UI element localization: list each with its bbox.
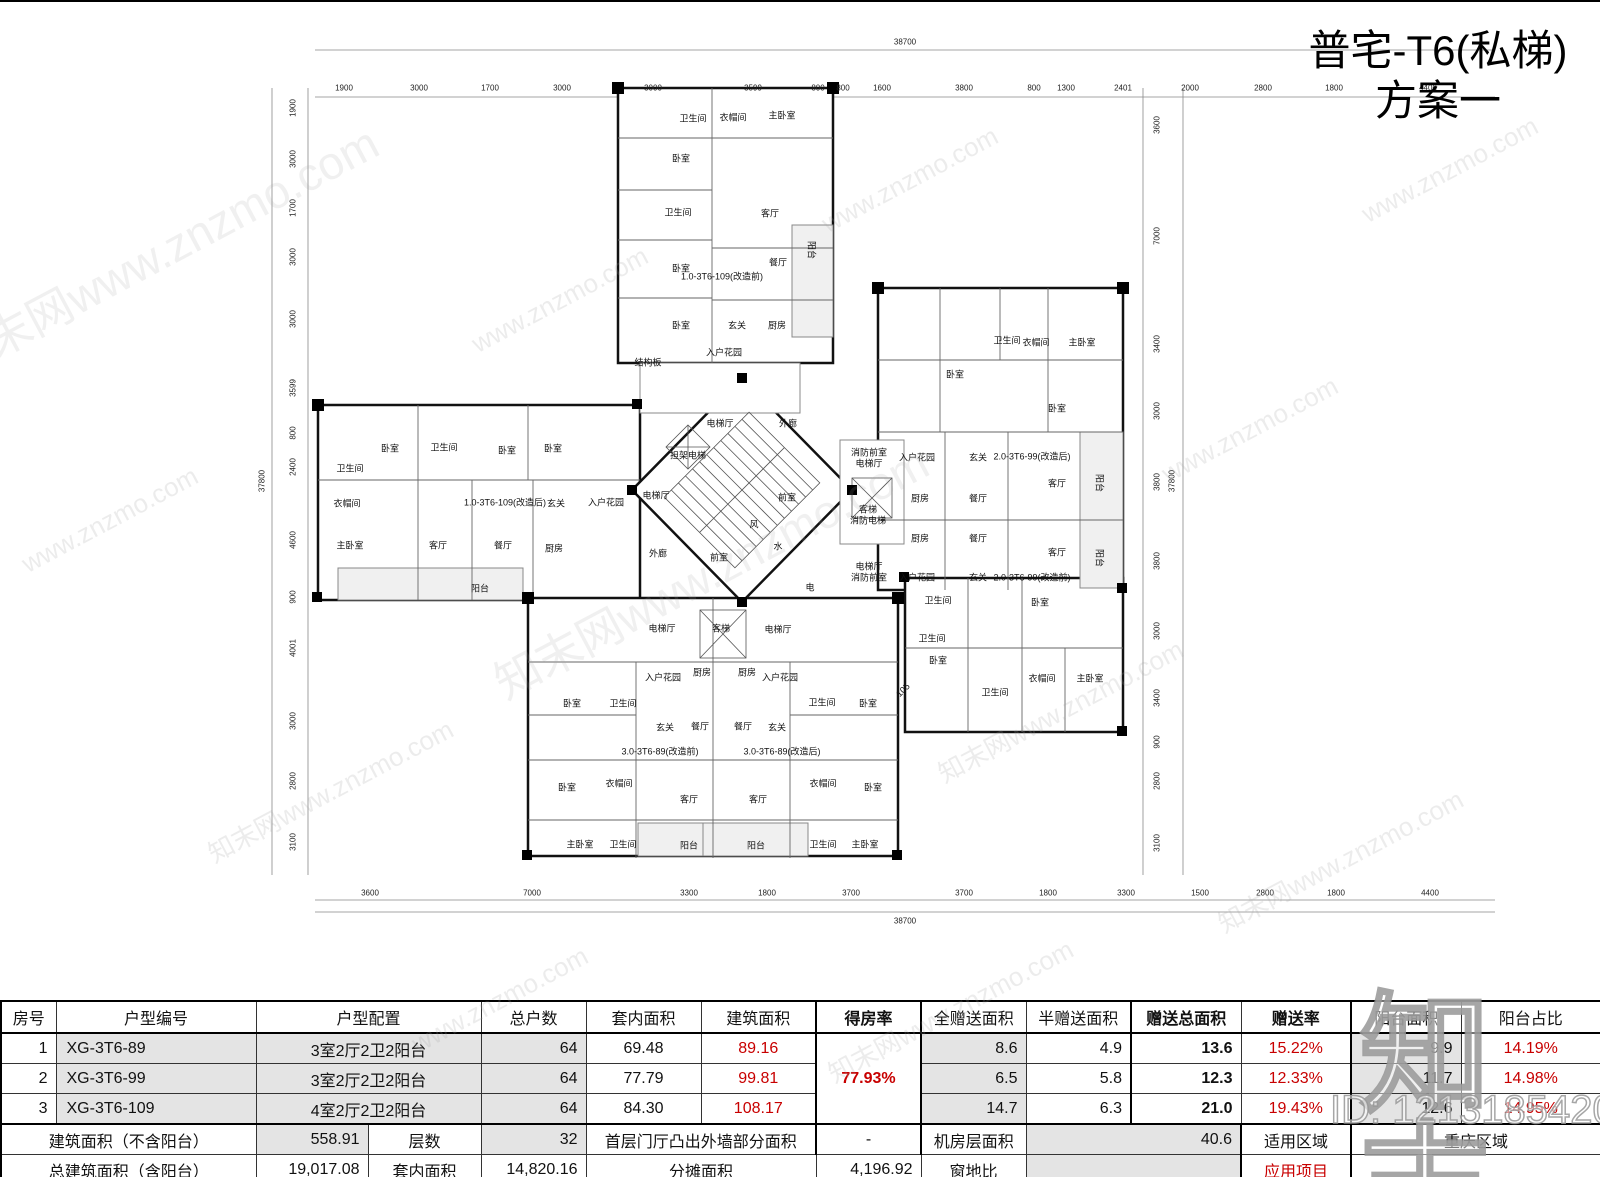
room-label: 卧室 xyxy=(946,368,964,381)
room-label: 衣帽间 xyxy=(1022,336,1049,349)
room-label: 厨房 xyxy=(738,666,756,679)
room-label: 阳台 xyxy=(1094,549,1107,567)
table-header-cell: 得房率 xyxy=(816,1001,921,1033)
room-label: 前室 xyxy=(778,491,796,504)
dimension-label: 3800 xyxy=(1153,552,1162,570)
dimension-label: 2000 xyxy=(1181,84,1199,93)
room-label: 厨房 xyxy=(545,542,563,555)
stats-table: 房号户型编号户型配置总户数套内面积建筑面积得房率全赠送面积半赠送面积赠送总面积赠… xyxy=(0,1000,1600,1177)
table-cell: 77.79 xyxy=(586,1064,701,1094)
overall-dim-bottom: 38700 xyxy=(894,917,916,926)
room-label: 1.0-3T6-109(改造后) xyxy=(464,496,546,509)
room-label: 结构板 xyxy=(634,356,661,369)
table-header-cell: 户型编号 xyxy=(56,1001,256,1033)
table-row: 总建筑面积（含阳台）19,017.08套内面积14,820.16分摊面积4,19… xyxy=(1,1155,1600,1177)
dimension-label: 2401 xyxy=(1114,84,1132,93)
dimension-label: 3400 xyxy=(1153,689,1162,707)
table-row: 3XG-3T6-1094室2厅2卫2阳台6484.30108.1714.76.3… xyxy=(1,1094,1600,1125)
room-label: 阳台 xyxy=(680,839,698,852)
dimension-label: 2400 xyxy=(289,458,298,476)
overall-dim-top: 38700 xyxy=(894,38,916,47)
room-label: 电梯厅 xyxy=(706,417,733,430)
dimension-label: 2800 xyxy=(1254,84,1272,93)
table-cell xyxy=(1026,1155,1241,1177)
table-header-cell: 阳台占比 xyxy=(1461,1001,1600,1033)
room-label: 餐厅 xyxy=(969,532,987,545)
room-label: 水 xyxy=(773,540,782,553)
room-label: 玄关 xyxy=(969,451,987,464)
room-label: 阳台 xyxy=(1094,474,1107,492)
room-label: 卧室 xyxy=(1048,402,1066,415)
dimension-label: 3000 xyxy=(1153,402,1162,420)
dimension-label: 3000 xyxy=(410,84,428,93)
room-label: 电梯厅 xyxy=(764,623,791,636)
table-cell: 机房层面积 xyxy=(921,1124,1026,1155)
room-label: 卫生间 xyxy=(609,838,636,851)
table-cell: 21.0 xyxy=(1131,1094,1241,1125)
room-label: 厨房 xyxy=(768,319,786,332)
room-label: 2.0-3T6-99(改造后) xyxy=(993,450,1070,463)
room-label: 主卧室 xyxy=(1068,336,1095,349)
dimension-label: 1900 xyxy=(335,84,353,93)
table-header-row: 房号户型编号户型配置总户数套内面积建筑面积得房率全赠送面积半赠送面积赠送总面积赠… xyxy=(1,1001,1600,1033)
room-label: 厨房 xyxy=(693,666,711,679)
table-cell: 适用区域 xyxy=(1241,1124,1351,1155)
room-label: 2.0-3T6-99(改造前) xyxy=(993,571,1070,584)
table-cell: 应用项目 xyxy=(1241,1155,1351,1177)
room-label: 阳台 xyxy=(806,241,819,259)
table-cell: 4,196.92 xyxy=(816,1155,921,1177)
table-header-cell: 建筑面积 xyxy=(701,1001,816,1033)
table-cell: 14.98% xyxy=(1461,1064,1600,1094)
table-cell: 11.7 xyxy=(1351,1064,1461,1094)
dimension-label: 800 xyxy=(289,426,298,439)
table-cell xyxy=(1351,1155,1600,1177)
dimension-label: 1500 xyxy=(1191,889,1209,898)
dimension-label: 2800 xyxy=(289,772,298,790)
table-cell: 64 xyxy=(481,1033,586,1064)
dimension-label: 3100 xyxy=(289,833,298,851)
dimension-label: 3700 xyxy=(842,889,860,898)
room-label: 卫生间 xyxy=(924,594,951,607)
room-label: 卧室 xyxy=(672,319,690,332)
table-cell: 3室2厅2卫2阳台 xyxy=(256,1064,481,1094)
dimension-label: 4400 xyxy=(1421,889,1439,898)
table-cell: 14,820.16 xyxy=(481,1155,586,1177)
room-label: 外廊 xyxy=(779,417,797,430)
table-cell: 558.91 xyxy=(256,1124,368,1155)
drawing-title-line1: 普宅-T6(私梯) xyxy=(1280,26,1596,76)
dimension-label: 3300 xyxy=(1117,889,1135,898)
table-cell: 40.6 xyxy=(1026,1124,1241,1155)
dimension-label: 3800 xyxy=(1153,473,1162,491)
table-cell: 8.6 xyxy=(921,1033,1026,1064)
dimension-label: 800 xyxy=(1027,84,1040,93)
dimension-label: 3700 xyxy=(955,889,973,898)
dimension-label: 3800 xyxy=(955,84,973,93)
room-label: 玄关 xyxy=(547,497,565,510)
room-label: 3.0-3T6-89(改造前) xyxy=(621,745,698,758)
table-cell: 窗地比 xyxy=(921,1155,1026,1177)
table-header-cell: 赠送总面积 xyxy=(1131,1001,1241,1033)
table-header-cell: 阳台面积 xyxy=(1351,1001,1461,1033)
table-cell: 3室2厅2卫2阳台 xyxy=(256,1033,481,1064)
room-label: 衣帽间 xyxy=(809,777,836,790)
room-label: 餐厅 xyxy=(734,720,752,733)
room-label: 主卧室 xyxy=(336,539,363,552)
overall-dim-right: 37800 xyxy=(1168,470,1177,492)
room-label: 卧室 xyxy=(929,654,947,667)
dimension-label: 3000 xyxy=(289,248,298,266)
dimension-label: 4600 xyxy=(289,531,298,549)
room-label: 卫生间 xyxy=(808,696,835,709)
table-cell: 1 xyxy=(1,1033,56,1064)
room-label: 入户花园 xyxy=(762,671,798,684)
room-label: 1.0-3T6-109(改造前) xyxy=(681,270,763,283)
room-label: 餐厅 xyxy=(691,720,709,733)
table-cell: 64 xyxy=(481,1094,586,1125)
room-label: 外廊 xyxy=(649,547,667,560)
dimension-label: 1300 xyxy=(1057,84,1075,93)
room-label: 餐厅 xyxy=(494,539,512,552)
room-label: 玄关 xyxy=(728,319,746,332)
table-cell: 6.3 xyxy=(1026,1094,1131,1125)
room-label: 主卧室 xyxy=(566,838,593,851)
table-cell: 84.30 xyxy=(586,1094,701,1125)
table-cell: 3 xyxy=(1,1094,56,1125)
dimension-label: 900 xyxy=(289,590,298,603)
room-label: 卧室 xyxy=(498,444,516,457)
room-label: 客厅 xyxy=(429,539,447,552)
room-label: 卧室 xyxy=(381,442,399,455)
dimension-label: 3600 xyxy=(1153,116,1162,134)
table-header-cell: 半赠送面积 xyxy=(1026,1001,1131,1033)
room-label: 风 xyxy=(749,518,758,531)
room-label: 卫生间 xyxy=(679,112,706,125)
room-label: 消防电梯 xyxy=(850,514,886,527)
overall-dim-left: 37800 xyxy=(258,470,267,492)
table-cell: 建筑面积（不含阳台） xyxy=(1,1124,256,1155)
room-label: 担架电梯 xyxy=(670,449,706,462)
dimension-label: 900 xyxy=(1153,735,1162,748)
room-label: 厨房 xyxy=(911,532,929,545)
dimension-label: 3000 xyxy=(289,310,298,328)
table-cell: 69.48 xyxy=(586,1033,701,1064)
room-label: 卫生间 xyxy=(430,441,457,454)
room-label: 卫生间 xyxy=(809,838,836,851)
table-cell: 12.6 xyxy=(1351,1094,1461,1125)
table-row: 2XG-3T6-993室2厅2卫2阳台6477.7999.816.55.812.… xyxy=(1,1064,1600,1094)
room-label: 卧室 xyxy=(1031,596,1049,609)
table-cell: XG-3T6-109 xyxy=(56,1094,256,1125)
room-label: 餐厅 xyxy=(769,256,787,269)
room-label: 玄关 xyxy=(656,721,674,734)
dimension-label: 3600 xyxy=(361,889,379,898)
stats-table-body: 1XG-3T6-893室2厅2卫2阳台6469.4889.1677.93%8.6… xyxy=(1,1033,1600,1177)
room-label: 卫生间 xyxy=(609,697,636,710)
table-cell: 19,017.08 xyxy=(256,1155,368,1177)
table-header-cell: 赠送率 xyxy=(1241,1001,1351,1033)
room-label: 电梯厅 xyxy=(855,457,882,470)
table-header-cell: 户型配置 xyxy=(256,1001,481,1033)
dimension-label: 1800 xyxy=(1327,889,1345,898)
room-label: 卧室 xyxy=(544,442,562,455)
room-label: 客厅 xyxy=(1048,546,1066,559)
table-header-cell: 房号 xyxy=(1,1001,56,1033)
dimension-label: 1800 xyxy=(758,889,776,898)
room-label: 卫生间 xyxy=(918,632,945,645)
room-label: 衣帽间 xyxy=(719,111,746,124)
dimension-label: 3000 xyxy=(289,150,298,168)
room-label: 卫生间 xyxy=(981,686,1008,699)
table-cell: 9.9 xyxy=(1351,1033,1461,1064)
dimension-label: 3599 xyxy=(744,84,762,93)
room-label: 客厅 xyxy=(1048,477,1066,490)
dimension-label: 3599 xyxy=(289,379,298,397)
table-cell: 64 xyxy=(481,1064,586,1094)
table-cell: 5.8 xyxy=(1026,1064,1131,1094)
dimension-label: 3000 xyxy=(1153,622,1162,640)
room-label: 客厅 xyxy=(749,793,767,806)
room-label: 主卧室 xyxy=(768,109,795,122)
dimension-label: 3000 xyxy=(289,712,298,730)
room-label: 卫生间 xyxy=(664,206,691,219)
table-cell: 6.5 xyxy=(921,1064,1026,1094)
table-cell: 分摊面积 xyxy=(586,1155,816,1177)
room-label: 客厅 xyxy=(680,793,698,806)
room-label: 阳台 xyxy=(471,582,489,595)
room-label: 客梯 xyxy=(712,622,730,635)
dimension-label: 7000 xyxy=(1153,227,1162,245)
plan-walls xyxy=(318,88,1123,856)
room-label: 入户花园 xyxy=(706,346,742,359)
table-header-cell: 总户数 xyxy=(481,1001,586,1033)
table-cell: 套内面积 xyxy=(368,1155,481,1177)
table-cell: 19.43% xyxy=(1241,1094,1351,1125)
dimension-label: 2800 xyxy=(1256,889,1274,898)
table-cell: 2 xyxy=(1,1064,56,1094)
room-label: 客厅 xyxy=(761,207,779,220)
room-label: 电 xyxy=(805,581,814,594)
room-label: 入户花园 xyxy=(588,496,624,509)
room-label: 卧室 xyxy=(672,152,690,165)
dimension-label: 1900 xyxy=(289,99,298,117)
room-label: 主卧室 xyxy=(851,838,878,851)
room-label: 入户花园 xyxy=(645,671,681,684)
table-cell: 首层门厅凸出外墙部分面积 xyxy=(586,1124,816,1155)
room-label: 玄关 xyxy=(969,571,987,584)
room-label: 电梯厅 xyxy=(642,489,669,502)
table-row: 1XG-3T6-893室2厅2卫2阳台6469.4889.1677.93%8.6… xyxy=(1,1033,1600,1064)
room-label: 电梯厅 xyxy=(648,622,675,635)
table-header-cell: 套内面积 xyxy=(586,1001,701,1033)
table-cell: 14.7 xyxy=(921,1094,1026,1125)
table-cell: 89.16 xyxy=(701,1033,816,1064)
table-row: 建筑面积（不含阳台）558.91层数32首层门厅凸出外墙部分面积-机房层面积40… xyxy=(1,1124,1600,1155)
dimension-label: 1700 xyxy=(289,199,298,217)
table-cell: XG-3T6-89 xyxy=(56,1033,256,1064)
dimension-label: 3400 xyxy=(1153,335,1162,353)
room-label: 餐厅 xyxy=(969,492,987,505)
table-cell: XG-3T6-99 xyxy=(56,1064,256,1094)
dimension-label: 1800 xyxy=(1039,889,1057,898)
table-cell: 77.93% xyxy=(816,1033,921,1124)
table-cell: 14.95% xyxy=(1461,1094,1600,1125)
room-label: 玄关 xyxy=(768,721,786,734)
dimension-label: 4001 xyxy=(289,639,298,657)
table-cell: - xyxy=(816,1124,921,1155)
room-label: 消防前室 xyxy=(851,571,887,584)
page: 卫生间衣帽间主卧室卧室卫生间客厅阳台卧室餐厅1.0-3T6-109(改造前)卧室… xyxy=(0,0,1600,1177)
dimension-label: 7000 xyxy=(523,889,541,898)
table-cell: 99.81 xyxy=(701,1064,816,1094)
room-label: 卫生间 xyxy=(993,334,1020,347)
dimension-label: 2800 xyxy=(1153,772,1162,790)
room-label: 衣帽间 xyxy=(333,497,360,510)
table-cell: 32 xyxy=(481,1124,586,1155)
table-cell: 4室2厅2卫2阳台 xyxy=(256,1094,481,1125)
table-cell: 12.33% xyxy=(1241,1064,1351,1094)
dimension-label: 1700 xyxy=(481,84,499,93)
table-cell: 108.17 xyxy=(701,1094,816,1125)
table-cell: 12.3 xyxy=(1131,1064,1241,1094)
room-label: 卧室 xyxy=(563,697,581,710)
room-label: 卧室 xyxy=(859,697,877,710)
room-label: 主卧室 xyxy=(1076,672,1103,685)
table-header-cell: 全赠送面积 xyxy=(921,1001,1026,1033)
room-label: 衣帽间 xyxy=(1028,672,1055,685)
table-cell: 重庆区域 xyxy=(1351,1124,1600,1155)
room-label: 入户花园 xyxy=(899,571,935,584)
table-cell: 13.6 xyxy=(1131,1033,1241,1064)
table-cell: 总建筑面积（含阳台） xyxy=(1,1155,256,1177)
dimension-label: 3000 xyxy=(553,84,571,93)
room-label: 入户花园 xyxy=(899,451,935,464)
drawing-title-line2: 方案一 xyxy=(1280,76,1596,126)
table-cell: 15.22% xyxy=(1241,1033,1351,1064)
room-label: 厨房 xyxy=(911,492,929,505)
room-label: 卫生间 xyxy=(336,462,363,475)
stats-table-head: 房号户型编号户型配置总户数套内面积建筑面积得房率全赠送面积半赠送面积赠送总面积赠… xyxy=(1,1001,1600,1033)
room-label: 卧室 xyxy=(558,781,576,794)
table-cell: 4.9 xyxy=(1026,1033,1131,1064)
dimension-label: 3000 xyxy=(644,84,662,93)
room-label: 卧室 xyxy=(864,781,882,794)
dimension-label: 800 xyxy=(836,84,849,93)
room-label: 前室 xyxy=(710,551,728,564)
dimension-label: 3300 xyxy=(680,889,698,898)
room-label: 3.0-3T6-89(改造后) xyxy=(743,745,820,758)
room-label: 阳台 xyxy=(747,839,765,852)
room-label: 衣帽间 xyxy=(605,777,632,790)
drawing-title: 普宅-T6(私梯) 方案一 xyxy=(1280,26,1596,125)
dimension-label: 800 xyxy=(811,84,824,93)
table-cell: 14.19% xyxy=(1461,1033,1600,1064)
table-cell: 层数 xyxy=(368,1124,481,1155)
dimension-label: 1600 xyxy=(873,84,891,93)
dimension-label: 3100 xyxy=(1153,834,1162,852)
